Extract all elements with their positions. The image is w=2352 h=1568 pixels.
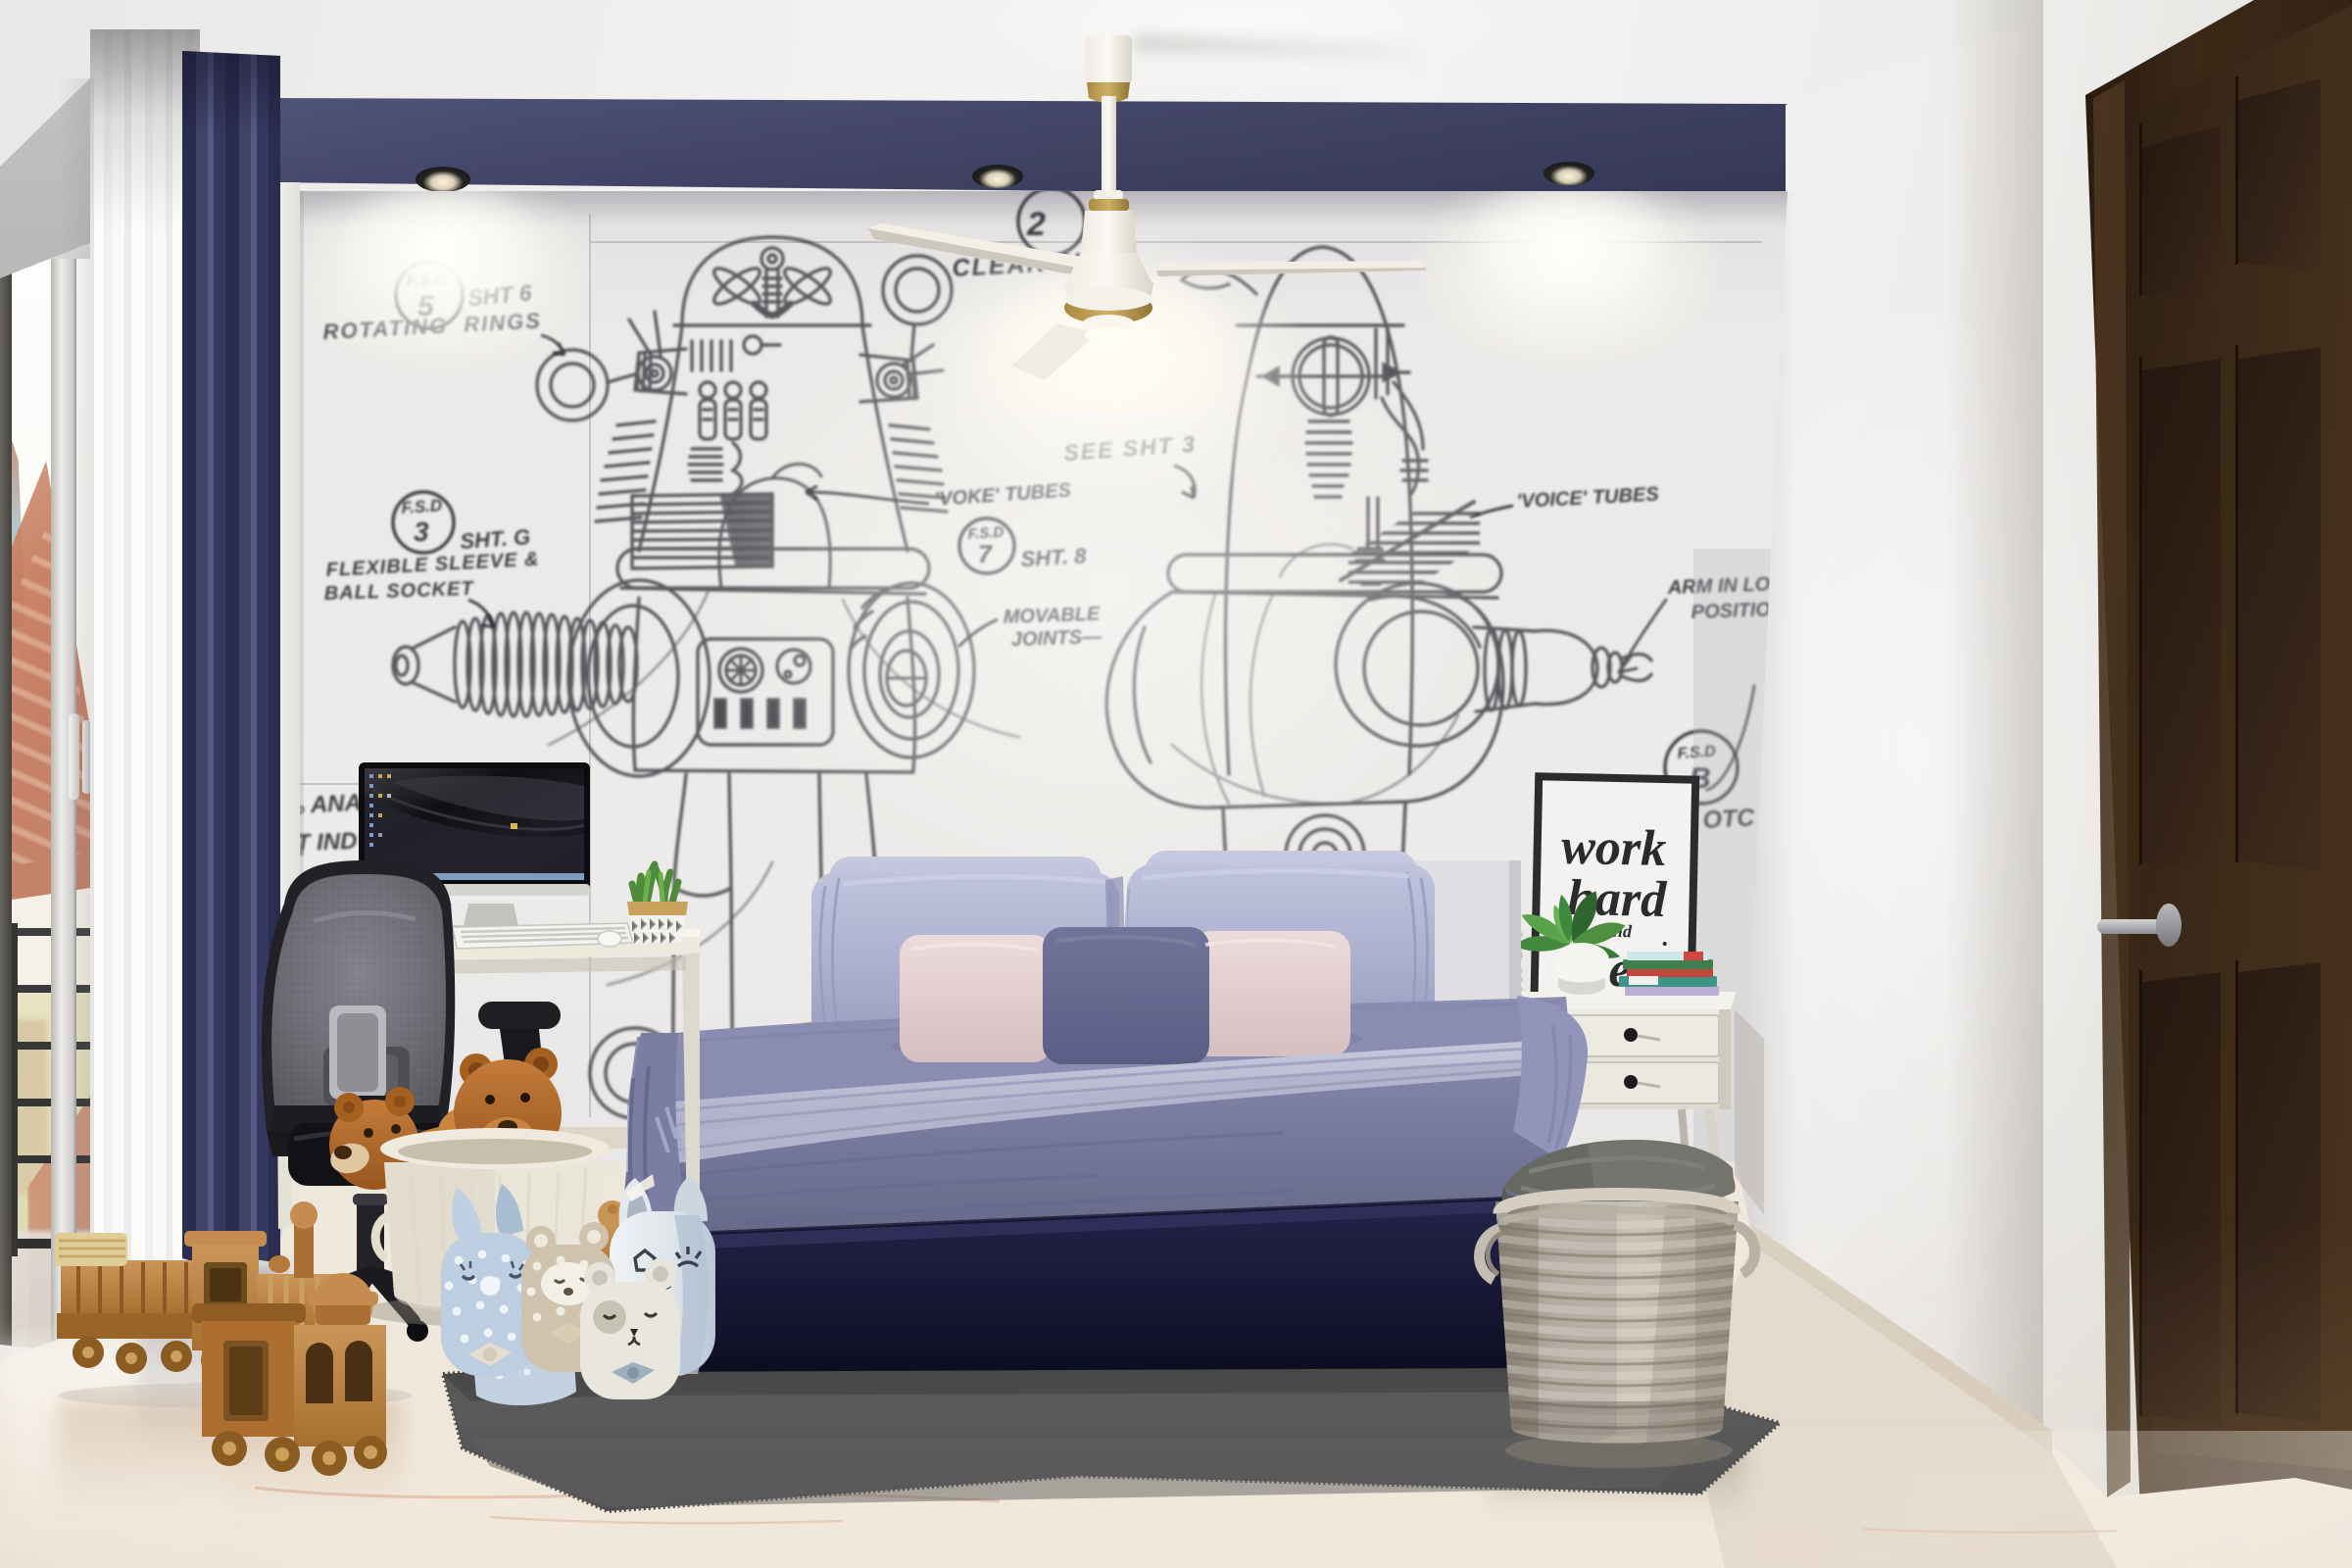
svg-text:F.S.D: F.S.D <box>401 496 443 517</box>
svg-text:3: 3 <box>414 516 429 547</box>
